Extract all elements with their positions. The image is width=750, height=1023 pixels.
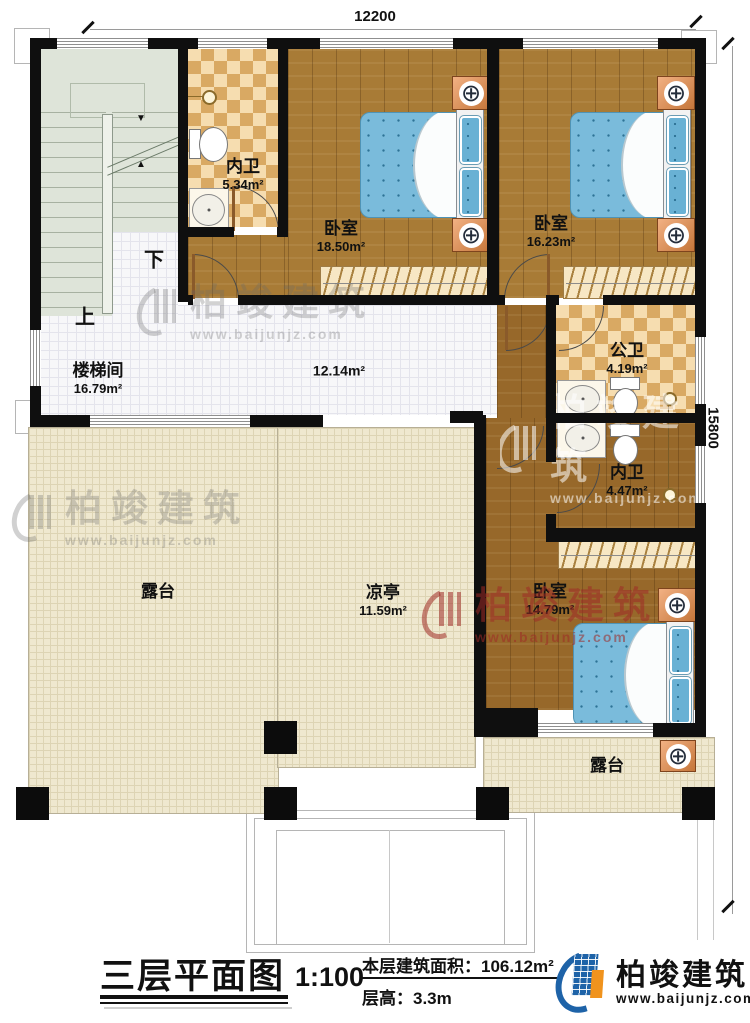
floor-plan: 12200 15800 ▼ ▲ 柏竣建筑 www.baijunjz.com — [0, 0, 750, 1023]
nightstand-ornament-icon: ⊕ — [666, 744, 691, 769]
wall-corridor-bottom — [30, 415, 90, 427]
bed-blanket — [624, 623, 668, 727]
door-leaf — [192, 254, 195, 299]
room-label-terrace-left: 露台 — [141, 582, 175, 602]
plan-title: 三层平面图 — [100, 948, 285, 999]
brand-url: www.baijunjz.com — [616, 991, 750, 1006]
column — [682, 787, 715, 820]
nightstand-ornament-icon: ⊕ — [664, 81, 689, 106]
terrace-extension-line — [697, 812, 698, 940]
room-label-terrace-right: 露台 — [590, 756, 624, 776]
stair-landing-outline — [70, 83, 145, 118]
sink-basin — [565, 424, 600, 452]
wall-lamp-icon — [202, 90, 217, 105]
top-dimension-line — [90, 29, 696, 30]
wall-stub — [450, 411, 483, 423]
stair-arrow-up-icon: ▲ — [136, 160, 146, 170]
window — [320, 38, 453, 49]
top-dimension-value: 12200 — [354, 8, 396, 25]
bed-pillow — [460, 116, 481, 164]
nightstand: ⊕ — [657, 218, 695, 252]
title-underline — [100, 995, 288, 999]
porch-outline-inner — [276, 830, 505, 945]
room-label-bath-inner: 内卫 4.47m² — [606, 463, 647, 499]
window — [538, 723, 653, 734]
room-label-bath-top: 内卫 5.34m² — [222, 157, 263, 193]
nightstand: ⊕ — [658, 588, 696, 622]
right-dimension-value: 15800 — [705, 407, 722, 449]
stair-arrow-down-icon: ▼ — [136, 114, 146, 124]
wall-bedroom-bottom — [653, 723, 695, 737]
wall-bedroom-divider — [487, 48, 499, 305]
bed — [570, 106, 692, 222]
wall-corridor-top — [603, 295, 695, 305]
wall-corridor-bottom — [250, 415, 323, 427]
wall-corridor-top — [238, 295, 505, 305]
terrace-extension-line — [713, 812, 714, 940]
window — [198, 38, 267, 49]
window — [57, 38, 148, 49]
room-label-stairwell: 楼梯间 16.79m² — [73, 361, 124, 397]
nightstand-ornament-icon: ⊕ — [664, 223, 689, 248]
toilet-bowl — [613, 435, 638, 465]
window — [90, 415, 250, 427]
room-label-pavilion: 凉亭 11.59m² — [359, 583, 407, 619]
wall-corridor-top — [188, 295, 193, 305]
bed-blanket — [621, 112, 665, 218]
stair-direction-down: 下 — [144, 244, 164, 273]
window — [30, 330, 41, 386]
bed-mattress — [573, 623, 668, 727]
floor-height-text: 层高：3.3m — [362, 984, 452, 1009]
nightstand-ornament-icon: ⊕ — [459, 223, 484, 248]
wall-bath-bedroom — [278, 48, 288, 229]
bed-pillow — [667, 116, 688, 164]
wall-bedroom-bottom — [474, 708, 538, 737]
porch-divider — [389, 830, 390, 943]
bed-pillow — [670, 627, 691, 674]
floor-height-value: 3.3m — [413, 989, 452, 1008]
bed-mattress — [570, 112, 665, 218]
nightstand-ornament-icon: ⊕ — [459, 81, 484, 106]
stair-rail — [102, 114, 113, 314]
room-label-corridor: 12.14m² — [313, 363, 365, 380]
nightstand: ⊕ — [660, 740, 696, 772]
wardrobe — [558, 540, 699, 569]
bed-pillow — [460, 168, 481, 216]
right-dimension-line — [732, 46, 733, 914]
column — [16, 787, 49, 820]
title-underline-shadow — [104, 1007, 292, 1009]
wall-bath-bottom — [277, 227, 288, 237]
plan-scale: 1:100 — [295, 962, 364, 993]
room-label-bedroom-left: 卧室 18.50m² — [317, 219, 365, 255]
nightstand-ornament-icon: ⊕ — [665, 593, 690, 618]
stair-treads-right — [112, 112, 178, 232]
floor-height-label: 层高： — [362, 989, 413, 1008]
door-leaf — [505, 306, 508, 350]
bed-mattress — [360, 112, 458, 218]
room-label-bedroom-bottom: 卧室 14.79m² — [526, 582, 574, 618]
brand-logo-icon — [561, 950, 611, 1010]
wall-vestibule-bath — [546, 295, 556, 462]
floor-area-text: 本层建筑面积：106.12m² — [362, 952, 554, 977]
nightstand: ⊕ — [657, 76, 695, 110]
window — [695, 337, 706, 404]
bed-blanket — [413, 112, 458, 218]
wall-bedroom-bottom-left — [474, 415, 486, 725]
towel-bar-knob — [663, 392, 677, 406]
dimension-tick — [689, 15, 702, 28]
wall-stair-divider — [178, 48, 188, 302]
column — [264, 721, 297, 754]
room-label-bedroom-right: 卧室 16.23m² — [527, 214, 575, 250]
brand-name: 柏竣建筑 — [616, 950, 748, 994]
corridor-floor — [40, 305, 500, 415]
column — [264, 787, 297, 820]
bed — [573, 618, 695, 730]
wall-bath-bottom — [188, 227, 234, 237]
room-label-bath-public: 公卫 4.19m² — [606, 341, 647, 377]
window — [523, 38, 658, 49]
sink-basin — [192, 194, 225, 226]
door-leaf — [547, 254, 550, 299]
wall-bath-divider — [556, 413, 695, 423]
stair-direction-up: 上 — [75, 301, 95, 330]
floor-area-value: 106.12m² — [481, 957, 554, 976]
nightstand: ⊕ — [452, 76, 490, 110]
bed-pillow — [667, 168, 688, 216]
towel-bar-knob — [663, 488, 677, 502]
window — [695, 446, 706, 503]
stairwell-floor: ▼ ▲ — [40, 48, 178, 316]
floor-area-label: 本层建筑面积： — [362, 957, 481, 976]
footer-divider — [362, 977, 562, 979]
dimension-tick — [81, 21, 94, 34]
title-underline — [100, 1002, 288, 1004]
terrace-left-floor — [28, 427, 279, 814]
bed — [360, 106, 485, 222]
wall-bath-inner-bottom — [546, 528, 695, 542]
nightstand: ⊕ — [452, 218, 490, 252]
sink-basin — [565, 385, 600, 413]
stair-treads-left — [40, 112, 106, 316]
bed-pillow — [670, 677, 691, 724]
column — [476, 787, 509, 820]
